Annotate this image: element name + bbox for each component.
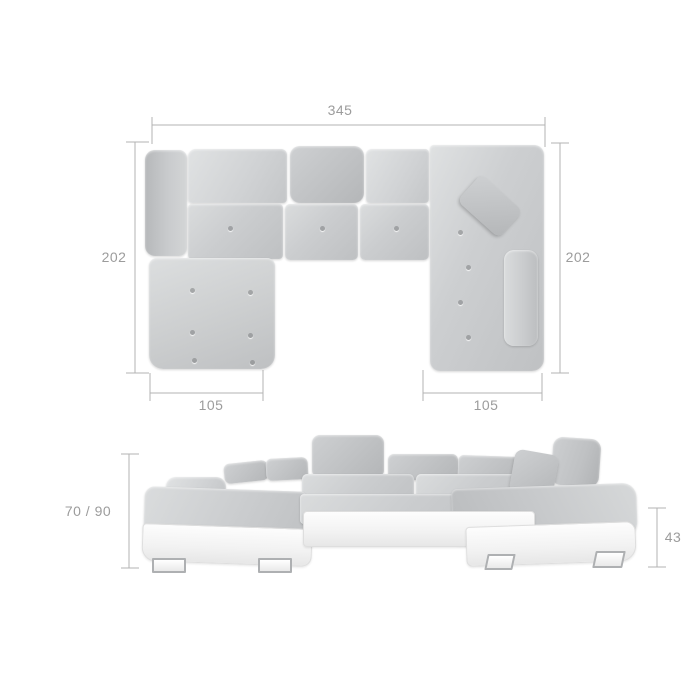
- top-view-back-cushion-left: [188, 149, 287, 203]
- tuft-button: [320, 226, 325, 231]
- tuft-button: [466, 265, 471, 270]
- top-view-right-bolster: [504, 250, 538, 346]
- top-view-middle-seat-1: [285, 204, 358, 260]
- front-view-leg: [258, 558, 292, 573]
- top-view-back-cushion-right: [366, 149, 429, 203]
- front-view-headrest-center-tall: [312, 435, 384, 475]
- top-view-middle-seat-2: [360, 204, 429, 260]
- tuft-button: [192, 358, 197, 363]
- top-view-left-seat: [188, 204, 283, 259]
- sofa-dimension-diagram: 345 202 202 105 105 70 / 90 43: [0, 0, 700, 700]
- tuft-button: [458, 300, 463, 305]
- tuft-button: [250, 360, 255, 365]
- tuft-button: [190, 330, 195, 335]
- tuft-button: [190, 288, 195, 293]
- top-view-left-armrest: [145, 150, 187, 256]
- front-view-leg: [152, 558, 186, 573]
- sofa-top-view: [0, 0, 700, 430]
- front-view-leg: [592, 551, 626, 568]
- tuft-button: [458, 230, 463, 235]
- tuft-button: [228, 226, 233, 231]
- top-view-left-chaise: [149, 258, 275, 369]
- sofa-front-view: [0, 420, 700, 600]
- tuft-button: [466, 335, 471, 340]
- tuft-button: [248, 290, 253, 295]
- front-view-headrest-left-a: [223, 460, 269, 484]
- tuft-button: [394, 226, 399, 231]
- tuft-button: [248, 333, 253, 338]
- top-view-headrest-cushion: [290, 146, 364, 203]
- front-view-leg: [484, 554, 515, 570]
